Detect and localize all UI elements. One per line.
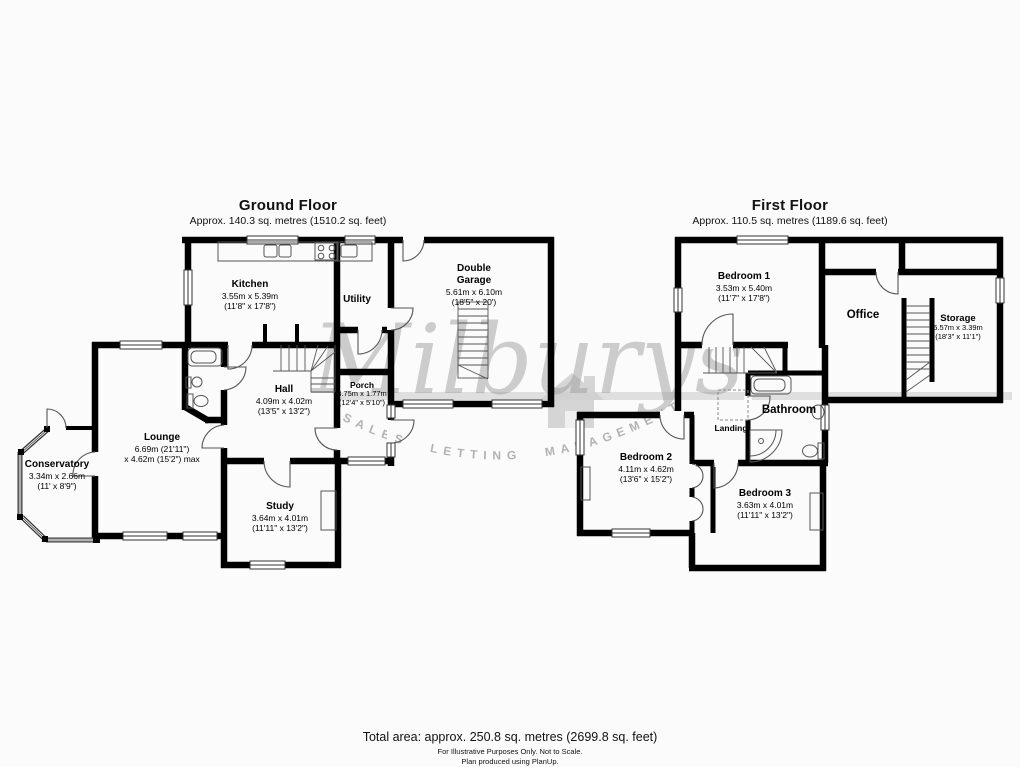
watermark: Milburys SALES LETTING MANAGEMENT	[310, 304, 1012, 463]
shower-icon	[750, 430, 782, 462]
room-label-hall: Hall 4.09m x 4.02m (13'5" x 13'2")	[256, 384, 312, 416]
ground-floor-title: Ground Floor Approx. 140.3 sq. metres (1…	[190, 197, 387, 227]
stairs-storage	[906, 306, 930, 392]
cloakroom-fixtures	[186, 348, 222, 408]
bathroom-fixtures	[750, 376, 824, 462]
room-label-storage: Storage 5.57m x 3.39m (18'3" x 11'1")	[933, 313, 983, 342]
room-label-conservatory: Conservatory 3.34m x 2.66m (11' x 8'9")	[25, 459, 89, 491]
kitchen-fixtures	[218, 242, 372, 261]
room-label-bedroom1: Bedroom 1 3.53m x 5.40m (11'7" x 17'8")	[716, 271, 772, 303]
room-label-lounge: Lounge 6.69m (21'11") x 4.62m (15'2") ma…	[124, 432, 200, 464]
floor-area-text: Approx. 140.3 sq. metres (1510.2 sq. fee…	[190, 215, 387, 227]
credit-text: Plan produced using PlanUp.	[0, 757, 1020, 767]
first-floor-title: First Floor Approx. 110.5 sq. metres (11…	[692, 197, 887, 227]
utility-sink-icon	[341, 245, 357, 257]
floorplan-svg: Milburys SALES LETTING MANAGEMENT	[0, 0, 1020, 765]
room-label-bathroom: Bathroom	[762, 404, 816, 418]
disclaimer-text: For Illustrative Purposes Only. Not to S…	[0, 747, 1020, 757]
room-label-porch: Porch 3.75m x 1.77m (12'4" x 5'10")	[337, 380, 387, 408]
total-area-text: Total area: approx. 250.8 sq. metres (26…	[0, 730, 1020, 744]
room-label-kitchen: Kitchen 3.55m x 5.39m (11'8" x 17'8")	[222, 279, 278, 311]
room-label-office: Office	[847, 309, 880, 323]
room-label-study: Study 3.64m x 4.01m (11'11" x 13'2")	[252, 501, 308, 533]
sink-icon	[264, 245, 277, 257]
floor-title-text: First Floor	[692, 197, 887, 214]
room-label-garage: Double Garage 5.61m x 6.10m (18'5" x 20'…	[439, 263, 509, 307]
room-label-bedroom3: Bedroom 3 3.63m x 4.01m (11'11" x 13'2")	[737, 488, 793, 520]
floor-title-text: Ground Floor	[190, 197, 387, 214]
floor-area-text: Approx. 110.5 sq. metres (1189.6 sq. fee…	[692, 215, 887, 227]
room-label-landing: Landing	[714, 423, 747, 433]
footer: Total area: approx. 250.8 sq. metres (26…	[0, 730, 1020, 767]
room-label-utility: Utility	[343, 294, 371, 306]
room-label-bedroom2: Bedroom 2 4.11m x 4.62m (13'6" x 15'2")	[618, 452, 674, 484]
